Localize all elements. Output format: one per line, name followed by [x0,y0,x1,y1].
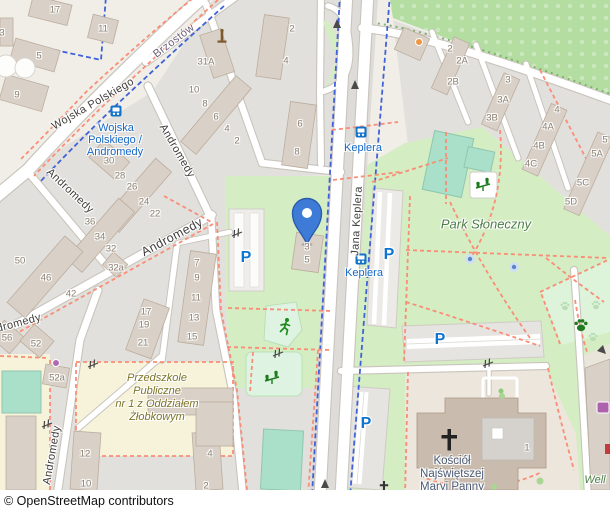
tree-icon [537,478,544,485]
poi-dot-purple [53,360,60,367]
attribution-text: © OpenStreetMap contributors [4,494,174,508]
fountain-icon [509,262,519,272]
red-label-fragment [605,444,610,454]
map-viewport: Wojska PolskiegoBrzostówAndromedyAndrome… [0,0,610,515]
pitch [260,429,303,490]
shop-icon [597,402,609,413]
playground-area [246,352,302,396]
playground-area [470,172,497,198]
tram-stop-icon[interactable] [356,254,367,265]
tree-icon [499,393,505,399]
pitch [2,371,41,413]
tram-stop-icon[interactable] [111,106,122,117]
osm-map-canvas[interactable]: Wojska PolskiegoBrzostówAndromedyAndrome… [0,0,610,490]
poi-dot-orange [416,39,423,46]
map-graphics [0,0,610,490]
attribution-bar: © OpenStreetMap contributors [0,490,610,515]
tram-stop-icon[interactable] [356,127,367,138]
fountain-icon [465,254,475,264]
